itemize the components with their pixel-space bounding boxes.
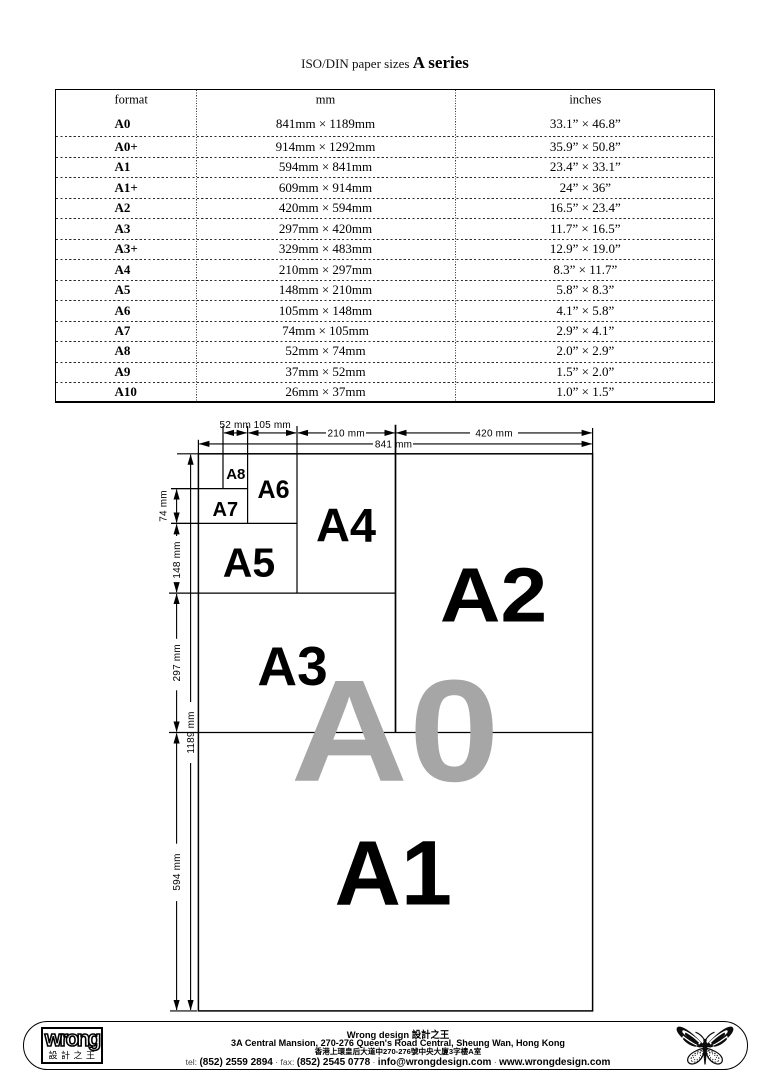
svg-text:A8: A8: [226, 466, 245, 483]
svg-text:105 mm: 105 mm: [254, 420, 291, 431]
svg-text:A7: A7: [213, 499, 239, 521]
svg-text:148 mm: 148 mm: [172, 541, 183, 578]
svg-text:A2: A2: [440, 553, 547, 639]
svg-text:A4: A4: [316, 499, 376, 552]
svg-text:841 mm: 841 mm: [375, 440, 412, 451]
svg-text:52 mm: 52 mm: [220, 420, 252, 431]
svg-text:1189 mm: 1189 mm: [186, 711, 197, 753]
svg-text:420 mm: 420 mm: [475, 429, 512, 440]
svg-text:A5: A5: [223, 539, 275, 585]
svg-text:A6: A6: [258, 476, 290, 504]
svg-text:A1: A1: [334, 823, 452, 925]
svg-text:A0: A0: [291, 650, 501, 812]
svg-text:74 mm: 74 mm: [159, 490, 170, 522]
svg-text:297 mm: 297 mm: [172, 644, 183, 681]
svg-text:594 mm: 594 mm: [172, 853, 183, 890]
svg-text:210 mm: 210 mm: [328, 429, 365, 440]
